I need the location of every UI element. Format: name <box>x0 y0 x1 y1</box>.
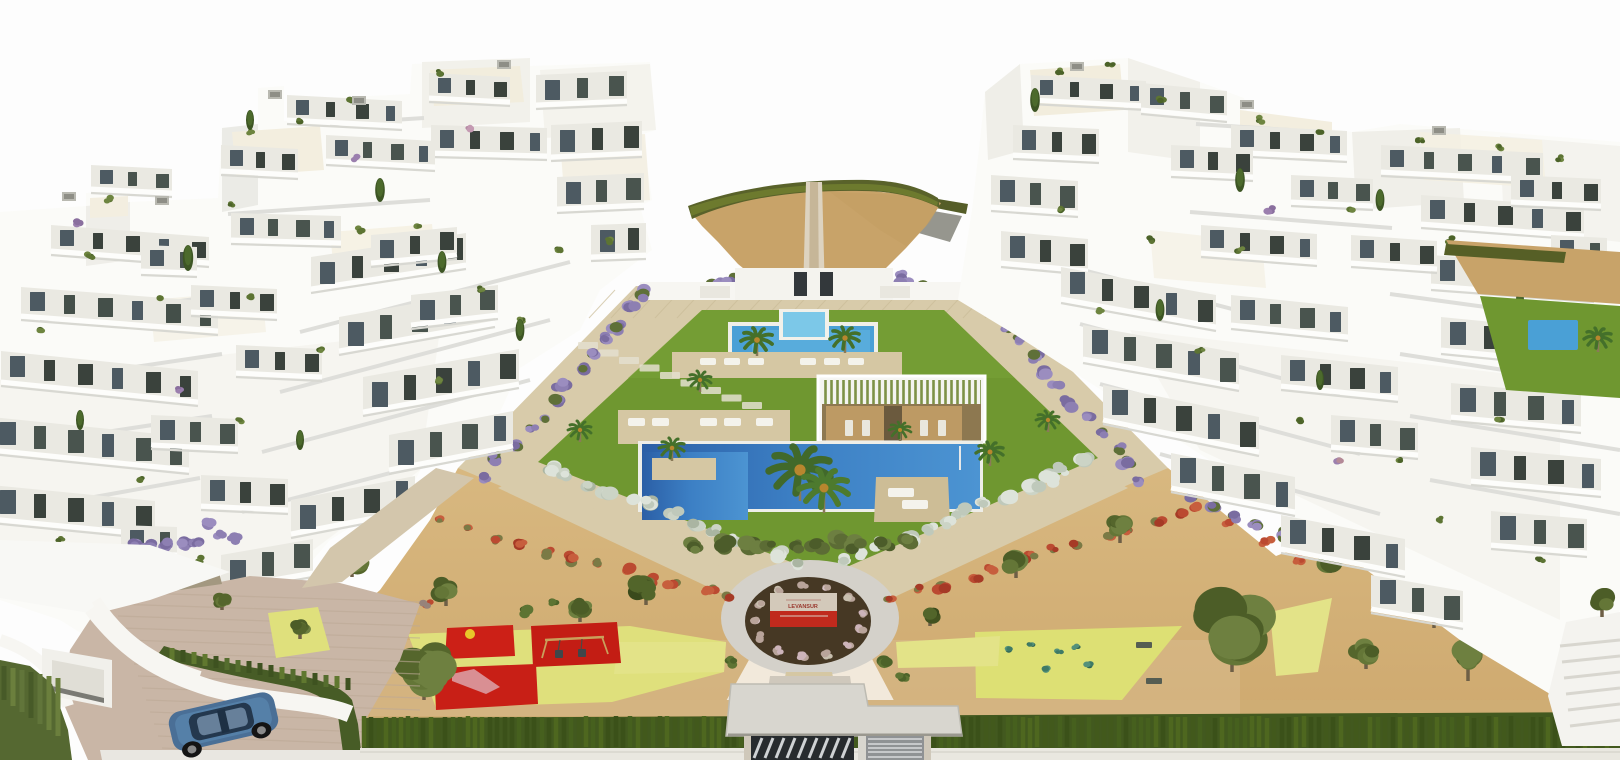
svg-text:LEVANSUR: LEVANSUR <box>788 604 818 610</box>
